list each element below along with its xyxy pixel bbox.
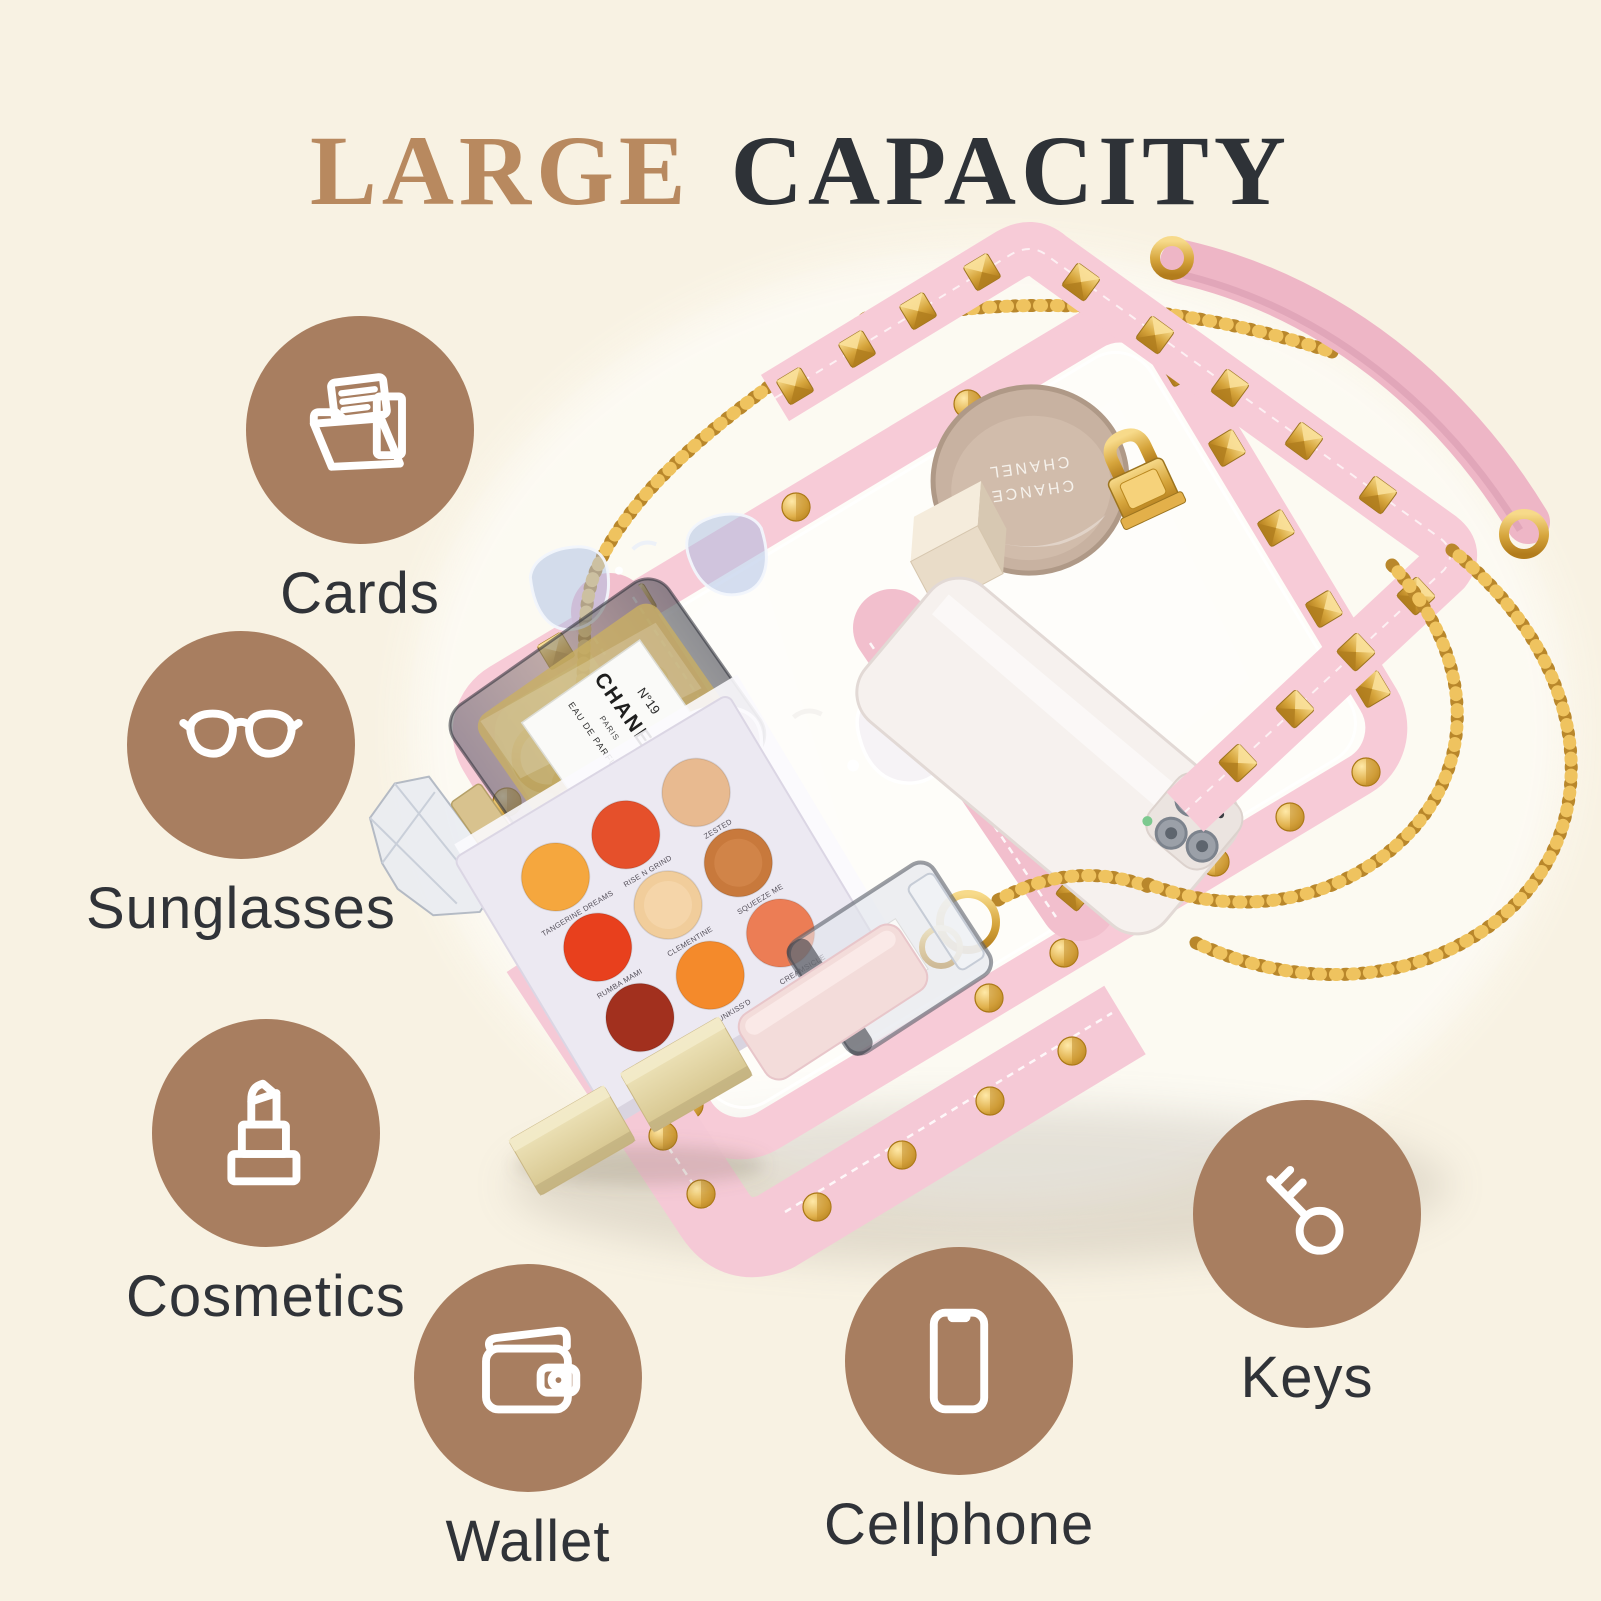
feature-sunglasses: Sunglasses: [86, 631, 396, 942]
feature-label: Sunglasses: [86, 875, 396, 942]
feature-cards: Cards: [246, 316, 474, 627]
lipstick-icon: [203, 1070, 329, 1196]
keys-badge-circle: [1193, 1100, 1421, 1328]
cards-badge-circle: [246, 316, 474, 544]
feature-keys: Keys: [1193, 1100, 1421, 1411]
sunglasses-badge-circle: [127, 631, 355, 859]
feature-cellphone: Cellphone: [824, 1247, 1094, 1558]
wallet-badge-circle: [414, 1264, 642, 1492]
feature-label: Wallet: [446, 1508, 611, 1575]
smartphone-icon: [896, 1298, 1022, 1424]
page: LARGECAPACITY: [0, 0, 1601, 1601]
wallet-icon: [465, 1315, 591, 1441]
feature-label: Keys: [1241, 1344, 1374, 1411]
feature-label: Cellphone: [824, 1491, 1094, 1558]
sunglasses-icon: [178, 682, 304, 808]
cellphone-badge-circle: [845, 1247, 1073, 1475]
folder-cards-icon: [297, 367, 423, 493]
feature-label: Cosmetics: [126, 1263, 406, 1330]
feature-label: Cards: [280, 560, 440, 627]
feature-cosmetics: Cosmetics: [126, 1019, 406, 1330]
cosmetics-badge-circle: [152, 1019, 380, 1247]
feature-wallet: Wallet: [414, 1264, 642, 1575]
key-icon: [1244, 1151, 1370, 1277]
